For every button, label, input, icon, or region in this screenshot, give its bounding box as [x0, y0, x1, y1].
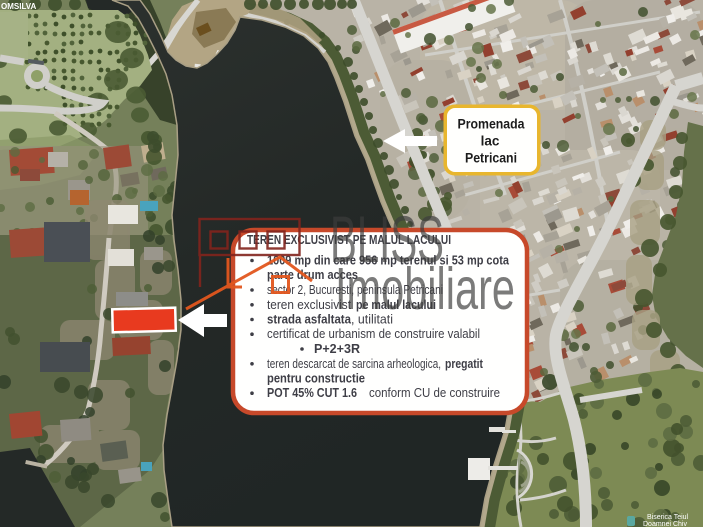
- svg-text:P+2+3R: P+2+3R: [314, 341, 361, 356]
- svg-text:pregatit: pregatit: [445, 356, 484, 371]
- svg-text:Doamnei Chiv: Doamnei Chiv: [643, 521, 687, 527]
- svg-text:certificat de urbanism de cons: certificat de urbanism de construire val…: [267, 326, 480, 341]
- svg-text:teren descarcat de sarcina arh: teren descarcat de sarcina arheologica,: [267, 356, 441, 371]
- svg-text:POT 45% CUT 1.6: POT 45% CUT 1.6: [267, 385, 357, 400]
- svg-text:Petricani: Petricani: [465, 151, 517, 166]
- svg-text:Biserica Teiul: Biserica Teiul: [647, 514, 689, 521]
- svg-text:lac: lac: [481, 134, 500, 149]
- svg-text:conform CU de construire: conform CU de construire: [369, 385, 500, 400]
- svg-text:Promenada: Promenada: [458, 117, 525, 132]
- svg-text:pentru constructie: pentru constructie: [267, 371, 365, 386]
- svg-text:Imobiliare: Imobiliare: [335, 256, 515, 322]
- svg-text:OMSILVA: OMSILVA: [1, 2, 36, 11]
